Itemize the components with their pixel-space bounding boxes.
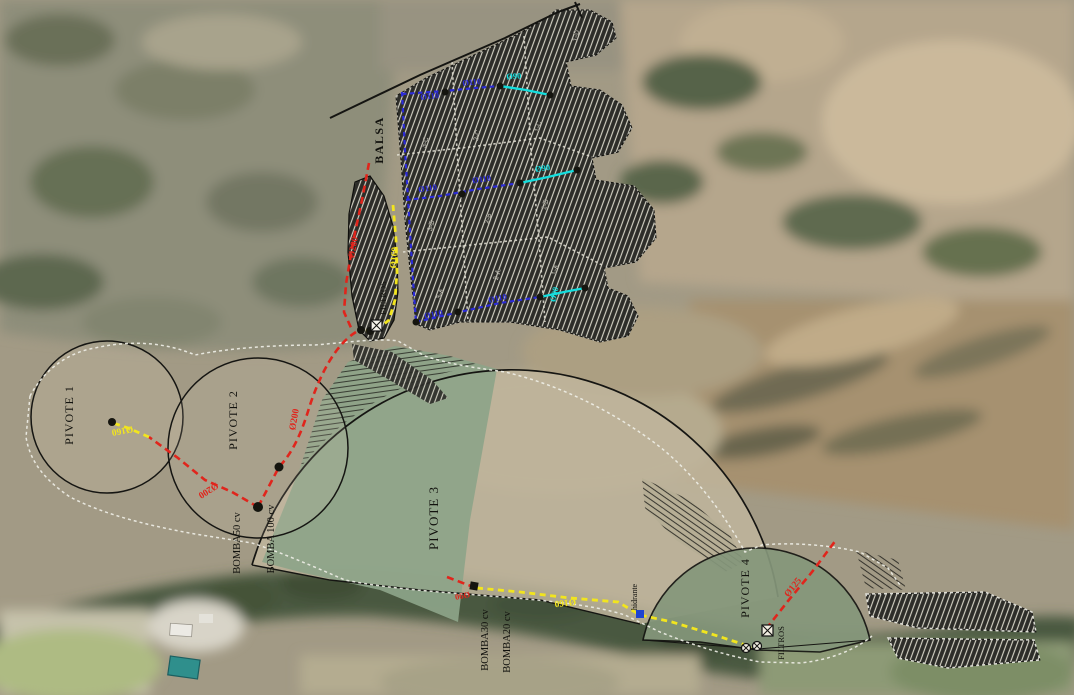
hydrant-square — [636, 610, 644, 618]
valve-dot — [459, 191, 466, 198]
pond — [168, 656, 200, 679]
hydrant-dot — [547, 92, 554, 99]
valve-symbol — [357, 326, 365, 334]
hidrante-label: hidrante — [630, 583, 639, 610]
pipe-label-d90-top: Ø90 — [506, 70, 522, 81]
bomba30-label: BOMBA30 cv — [480, 608, 491, 670]
valve-dot — [497, 83, 504, 90]
valve-dot — [517, 180, 524, 187]
bomba50-label: BOMBA50 cv — [232, 511, 243, 573]
farm-building — [170, 623, 193, 637]
bomba100-label: BOMBA 100 cv — [266, 504, 277, 574]
pivot2-center-dot — [275, 463, 284, 472]
balsa-label: BALSA — [372, 116, 386, 164]
farm-building-small — [199, 614, 213, 623]
pump-marker-square — [469, 581, 478, 590]
pipe-label-d110-2: Ø110 — [462, 76, 482, 88]
pivote2-label: PIVOTE 2 — [226, 390, 240, 450]
pivot1-center-dot — [108, 418, 116, 426]
valve-dot — [442, 89, 449, 96]
pivot1-circle — [31, 341, 183, 493]
filtros-top-label: FILTROS — [378, 281, 388, 315]
bomba20-label: BOMBA20 cv — [502, 610, 513, 672]
pipe-label-d110-1: Ø110 — [420, 90, 440, 102]
hydrant-dot — [582, 285, 589, 292]
pivote1-label: PIVOTE 1 — [62, 385, 76, 445]
irrigation-plan-map: BALSA FILTROS FILTROS hidrante PIVOTE 1 … — [0, 0, 1074, 695]
pipe-label-d160-balsa: Ø160 — [389, 246, 401, 269]
pump-station-dot — [253, 502, 263, 512]
filtros-bottom-label: FILTROS — [776, 626, 786, 660]
valve-dot — [537, 294, 544, 301]
valve-dot — [413, 319, 420, 326]
pivote3-label: PIVOTE 3 — [426, 486, 441, 550]
valve-dot — [455, 309, 462, 316]
hydrant-dot — [574, 167, 581, 174]
pivote4-label: PIVOTE 4 — [738, 558, 752, 618]
